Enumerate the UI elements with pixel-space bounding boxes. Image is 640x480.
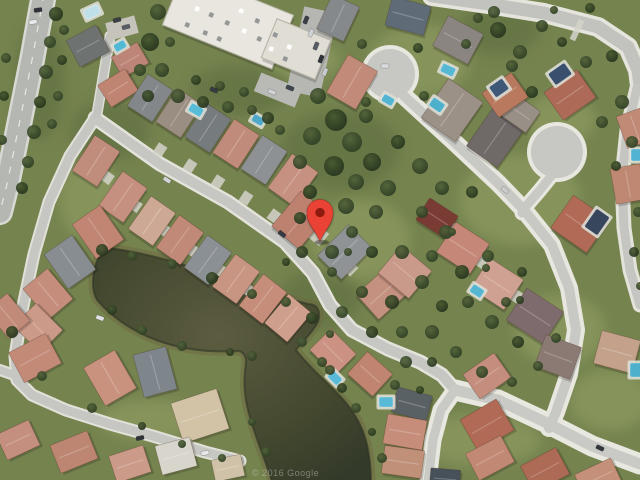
copyright-watermark: © 2016 Google <box>252 468 319 478</box>
map-pin[interactable] <box>302 198 338 245</box>
pin-body <box>307 199 333 241</box>
pin-inner-dot <box>315 208 324 217</box>
satellite-map[interactable]: © 2016 Google <box>0 0 640 480</box>
pin-shadow <box>315 240 329 245</box>
